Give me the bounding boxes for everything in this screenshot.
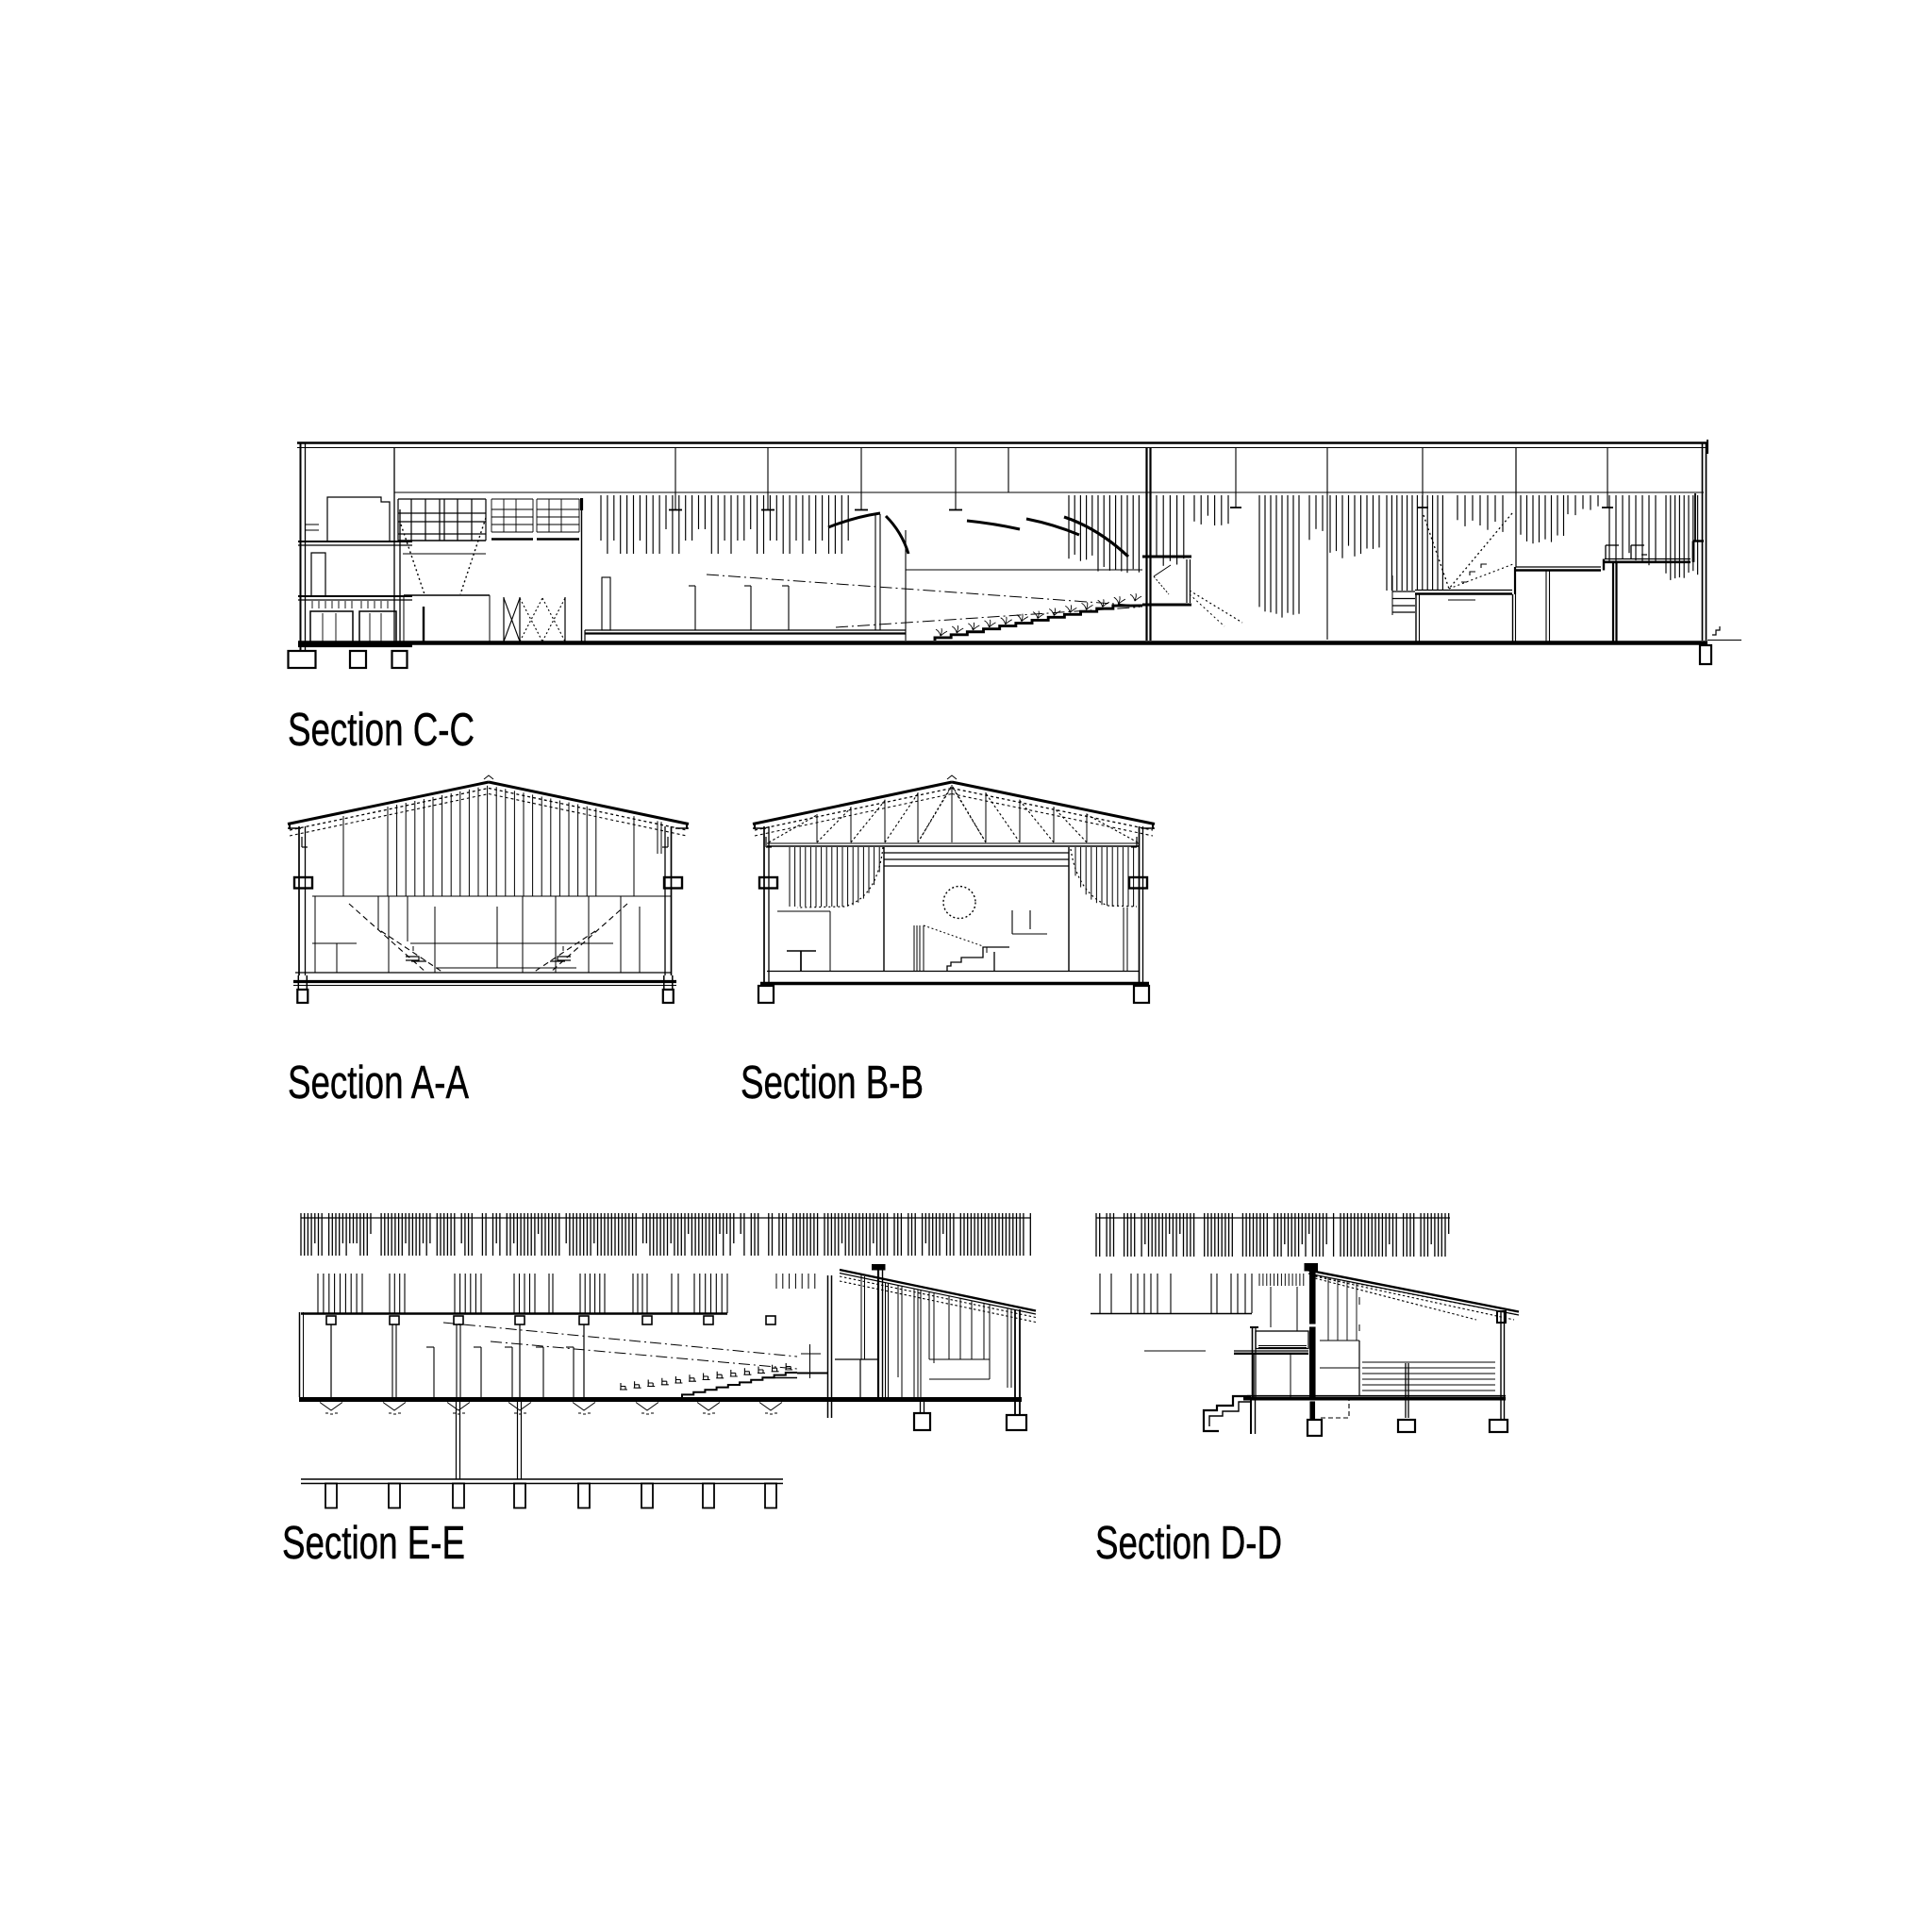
svg-text:Section D-D: Section D-D	[1095, 1518, 1282, 1569]
svg-text:Section C-C: Section C-C	[288, 705, 475, 756]
svg-text:Section B-B: Section B-B	[741, 1058, 924, 1108]
svg-text:Section A-A: Section A-A	[288, 1058, 469, 1108]
svg-text:Section E-E: Section E-E	[282, 1518, 465, 1569]
